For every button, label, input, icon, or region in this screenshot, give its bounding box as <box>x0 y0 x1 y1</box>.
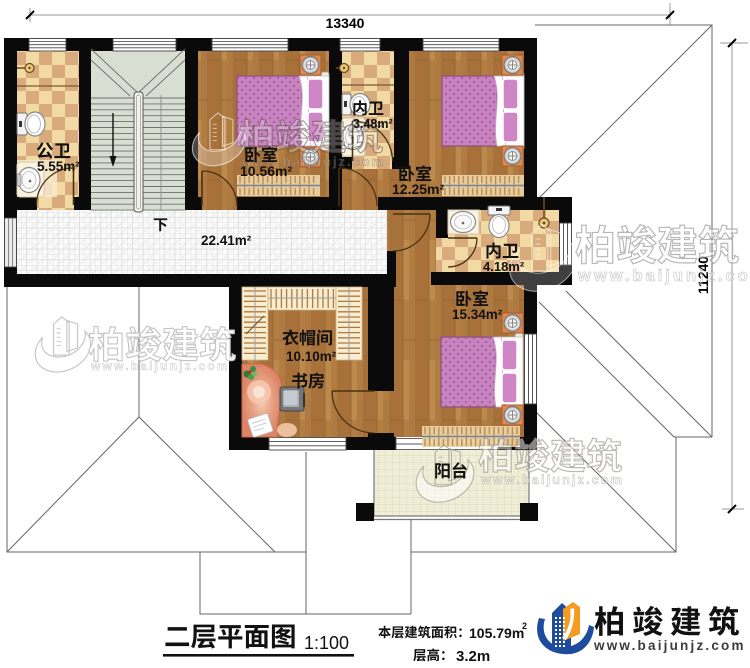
svg-text:www.baijunjz.com: www.baijunjz.com <box>90 359 230 373</box>
svg-text:www.baijunjz.com: www.baijunjz.com <box>577 267 750 285</box>
svg-text:2: 2 <box>522 621 527 631</box>
svg-text:5.55m²: 5.55m² <box>37 159 80 174</box>
svg-text:12.25m²: 12.25m² <box>392 181 444 197</box>
svg-text:22.41m²: 22.41m² <box>201 233 252 248</box>
svg-text:www.baijunjz.com: www.baijunjz.com <box>593 638 746 653</box>
svg-text:10.56m²: 10.56m² <box>240 163 292 179</box>
svg-text:105.79m: 105.79m <box>469 625 524 641</box>
svg-text:10.10m²: 10.10m² <box>286 349 337 364</box>
svg-text:3.48m²: 3.48m² <box>353 117 393 131</box>
svg-text:4.18m²: 4.18m² <box>483 259 525 274</box>
svg-text:15.34m²: 15.34m² <box>452 307 503 322</box>
svg-text:13340: 13340 <box>326 15 365 31</box>
svg-text:3.2m: 3.2m <box>456 648 490 665</box>
svg-text:1:100: 1:100 <box>304 633 349 653</box>
svg-text:www.baijunjz.com: www.baijunjz.com <box>480 473 624 487</box>
